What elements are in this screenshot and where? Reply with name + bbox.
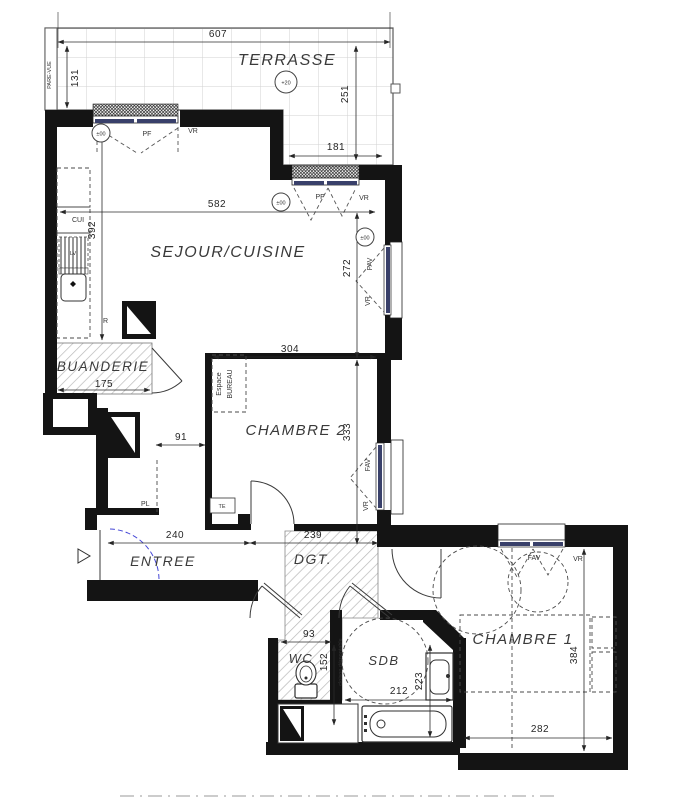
vr-label-2: VR: [359, 195, 369, 202]
room-label-buanderie: BUANDERIE: [57, 359, 149, 374]
vr-label-1: VR: [188, 128, 198, 135]
window-chambre2: [350, 440, 403, 514]
svg-text:304: 304: [281, 344, 299, 355]
terrace-edge-post: [391, 84, 400, 93]
level-zero-2: ±00: [276, 201, 285, 207]
dim-chambre2-height: 333: [342, 360, 357, 544]
espace-bureau-line2: BUREAU: [227, 369, 234, 398]
svg-text:131: 131: [70, 69, 81, 87]
window-sejour-right: [356, 242, 402, 318]
pare-vue-label: PARE-VUE: [47, 61, 53, 89]
nightstand-2: [592, 652, 616, 692]
espace-bureau-line1: Espace: [216, 372, 223, 395]
vr-label-3: VR: [365, 296, 372, 306]
dim-sejour-height: 392: [87, 129, 102, 340]
nightstand-1: [592, 617, 616, 648]
svg-text:93: 93: [303, 629, 315, 640]
svg-text:392: 392: [87, 221, 98, 239]
pf-label-2: PF: [316, 194, 325, 201]
dim-sejour-right-height: 272: [342, 213, 357, 358]
room-label-entree: ENTREE: [130, 553, 196, 569]
pl-label: PL: [141, 501, 150, 508]
svg-text:181: 181: [327, 142, 345, 153]
room-label-sejour: SEJOUR/CUISINE: [150, 244, 305, 261]
svg-text:175: 175: [95, 379, 113, 390]
svg-text:239: 239: [304, 530, 322, 541]
fav-label-1: FAV: [367, 257, 374, 270]
shaft-sejour: [122, 301, 156, 339]
svg-text:212: 212: [390, 686, 408, 697]
svg-text:582: 582: [208, 199, 226, 210]
dim-passage: 91: [156, 432, 205, 445]
room-label-chambre2: CHAMBRE 2: [245, 422, 346, 439]
toilet: [295, 661, 317, 698]
room-label-dgt: DGT.: [294, 551, 332, 567]
door-chambre2: [251, 481, 294, 524]
level-terrasse: +20: [281, 81, 290, 87]
door-buanderie: [152, 348, 182, 393]
svg-text:272: 272: [342, 259, 353, 277]
room-label-sdb: SDB: [368, 653, 399, 668]
door-chambre1: [392, 549, 441, 598]
svg-text:91: 91: [175, 432, 187, 443]
pf-label-1: PF: [143, 131, 152, 138]
vr-label-5: VR: [573, 556, 583, 563]
room-label-chambre1: CHAMBRE 1: [472, 631, 573, 648]
te-label: TE: [218, 504, 225, 510]
fav-label-2: FAV: [365, 458, 372, 471]
vr-label-4: VR: [363, 501, 370, 511]
svg-text:152: 152: [319, 653, 330, 671]
cui-label: CUI: [72, 217, 84, 224]
svg-text:223: 223: [414, 672, 425, 690]
bathtub: [362, 706, 452, 742]
svg-text:282: 282: [531, 724, 549, 735]
floor-plan-page: 607 131 251 181 582 392 272 304: [0, 0, 681, 800]
dim-entree: 240: [108, 530, 250, 543]
dim-sejour-width: 582: [60, 199, 375, 212]
lv-label: LV: [70, 251, 77, 257]
level-zero-1: ±00: [96, 132, 105, 138]
windows: [93, 104, 565, 577]
svg-text:384: 384: [569, 646, 580, 664]
dim-chambre1-height: 384: [569, 549, 584, 751]
floor-plan-drawing: 607 131 251 181 582 392 272 304: [0, 0, 681, 800]
fridge-label: R: [103, 318, 108, 325]
window-chambre1: [498, 524, 565, 577]
dim-chambre1-width: 282: [464, 724, 612, 738]
level-zero-3: ±00: [360, 236, 369, 242]
room-label-wc: WC: [289, 651, 314, 666]
dim-text: 607: [209, 29, 227, 40]
fav-label-3: FAV: [528, 555, 541, 562]
svg-text:240: 240: [166, 530, 184, 541]
kitchen-sink: [61, 274, 86, 301]
entrance-arrow-icon: [78, 549, 90, 563]
room-label-terrasse: TERRASSE: [238, 52, 336, 69]
shaft-entree: [107, 412, 140, 458]
shaft-wc: [278, 704, 358, 743]
svg-text:251: 251: [340, 85, 351, 103]
cloison-label: cloison démontable: [338, 638, 344, 685]
